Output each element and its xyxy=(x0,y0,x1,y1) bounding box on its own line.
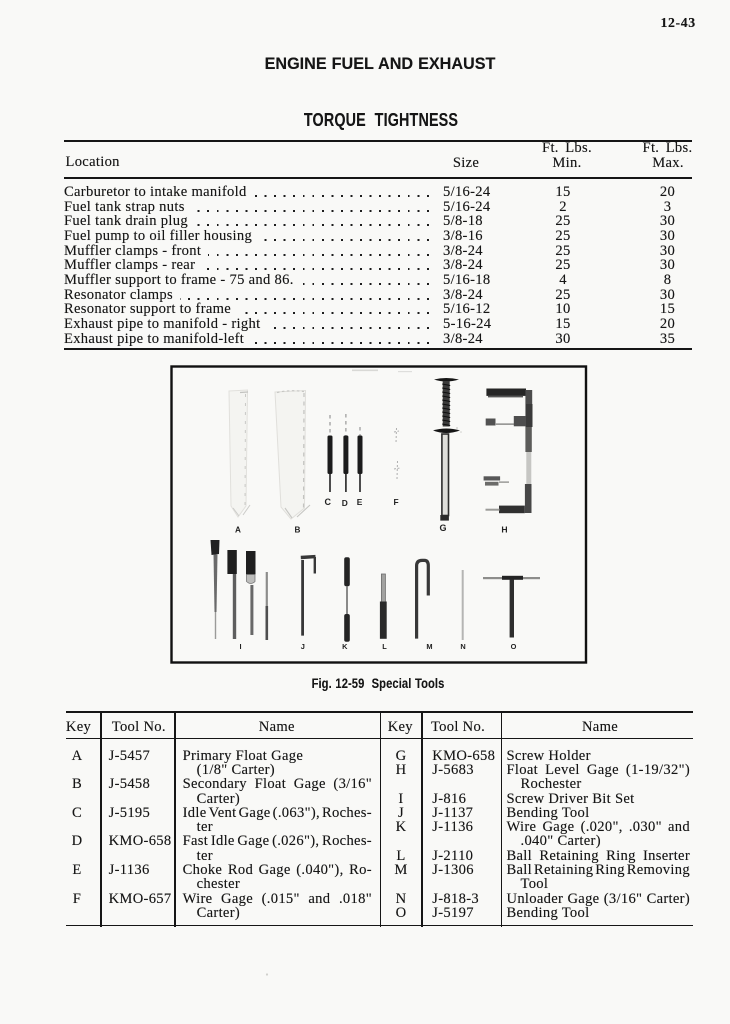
svg-text:J: J xyxy=(301,642,305,651)
svg-text:A: A xyxy=(235,525,241,534)
svg-text:I: I xyxy=(239,642,241,651)
svg-text:H: H xyxy=(501,524,507,534)
svg-text:K: K xyxy=(342,642,348,651)
svg-text:G: G xyxy=(439,523,446,533)
svg-text:F: F xyxy=(393,497,398,507)
svg-text:M: M xyxy=(426,642,432,651)
svg-text:N: N xyxy=(460,642,465,651)
svg-text:L: L xyxy=(382,642,387,651)
svg-text:O: O xyxy=(511,642,517,651)
svg-text:C: C xyxy=(325,497,332,507)
svg-text:D: D xyxy=(342,498,348,508)
svg-text:B: B xyxy=(295,525,301,534)
svg-text:E: E xyxy=(357,497,363,507)
